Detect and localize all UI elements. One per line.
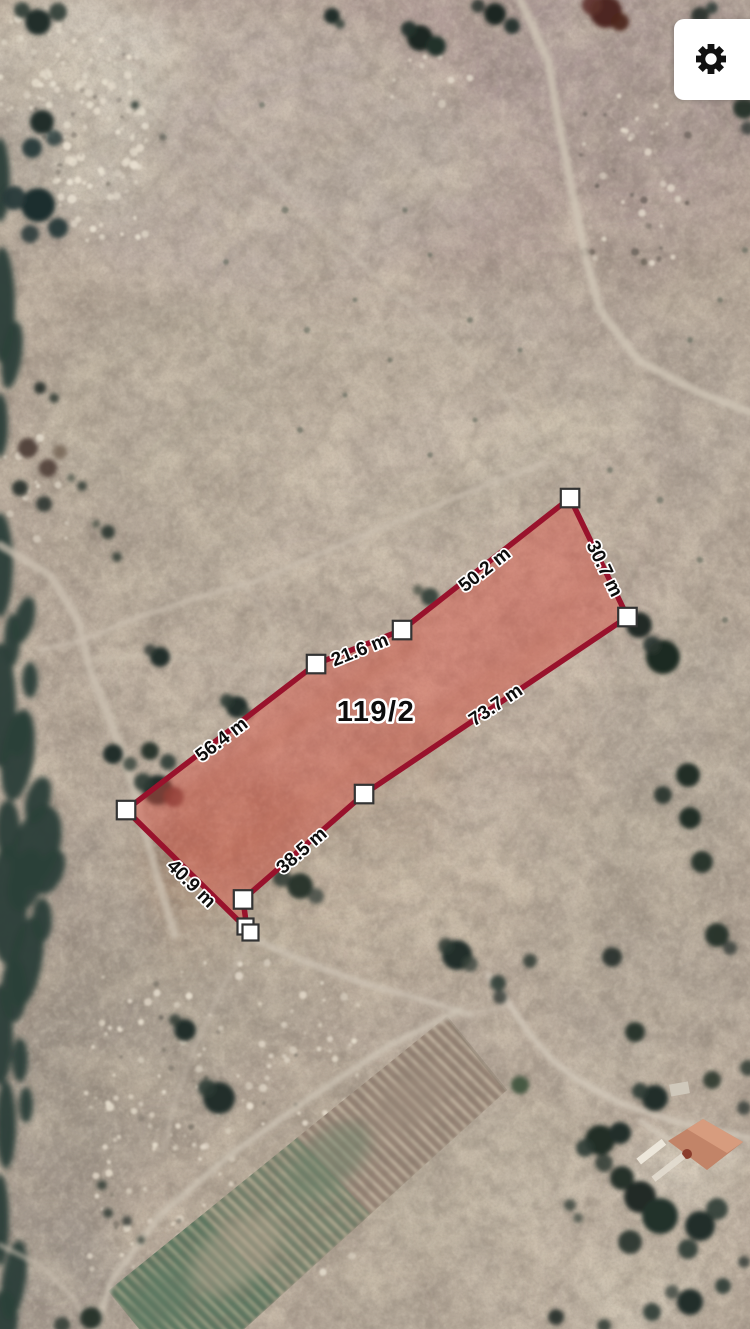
- svg-text:119/2: 119/2: [337, 696, 415, 728]
